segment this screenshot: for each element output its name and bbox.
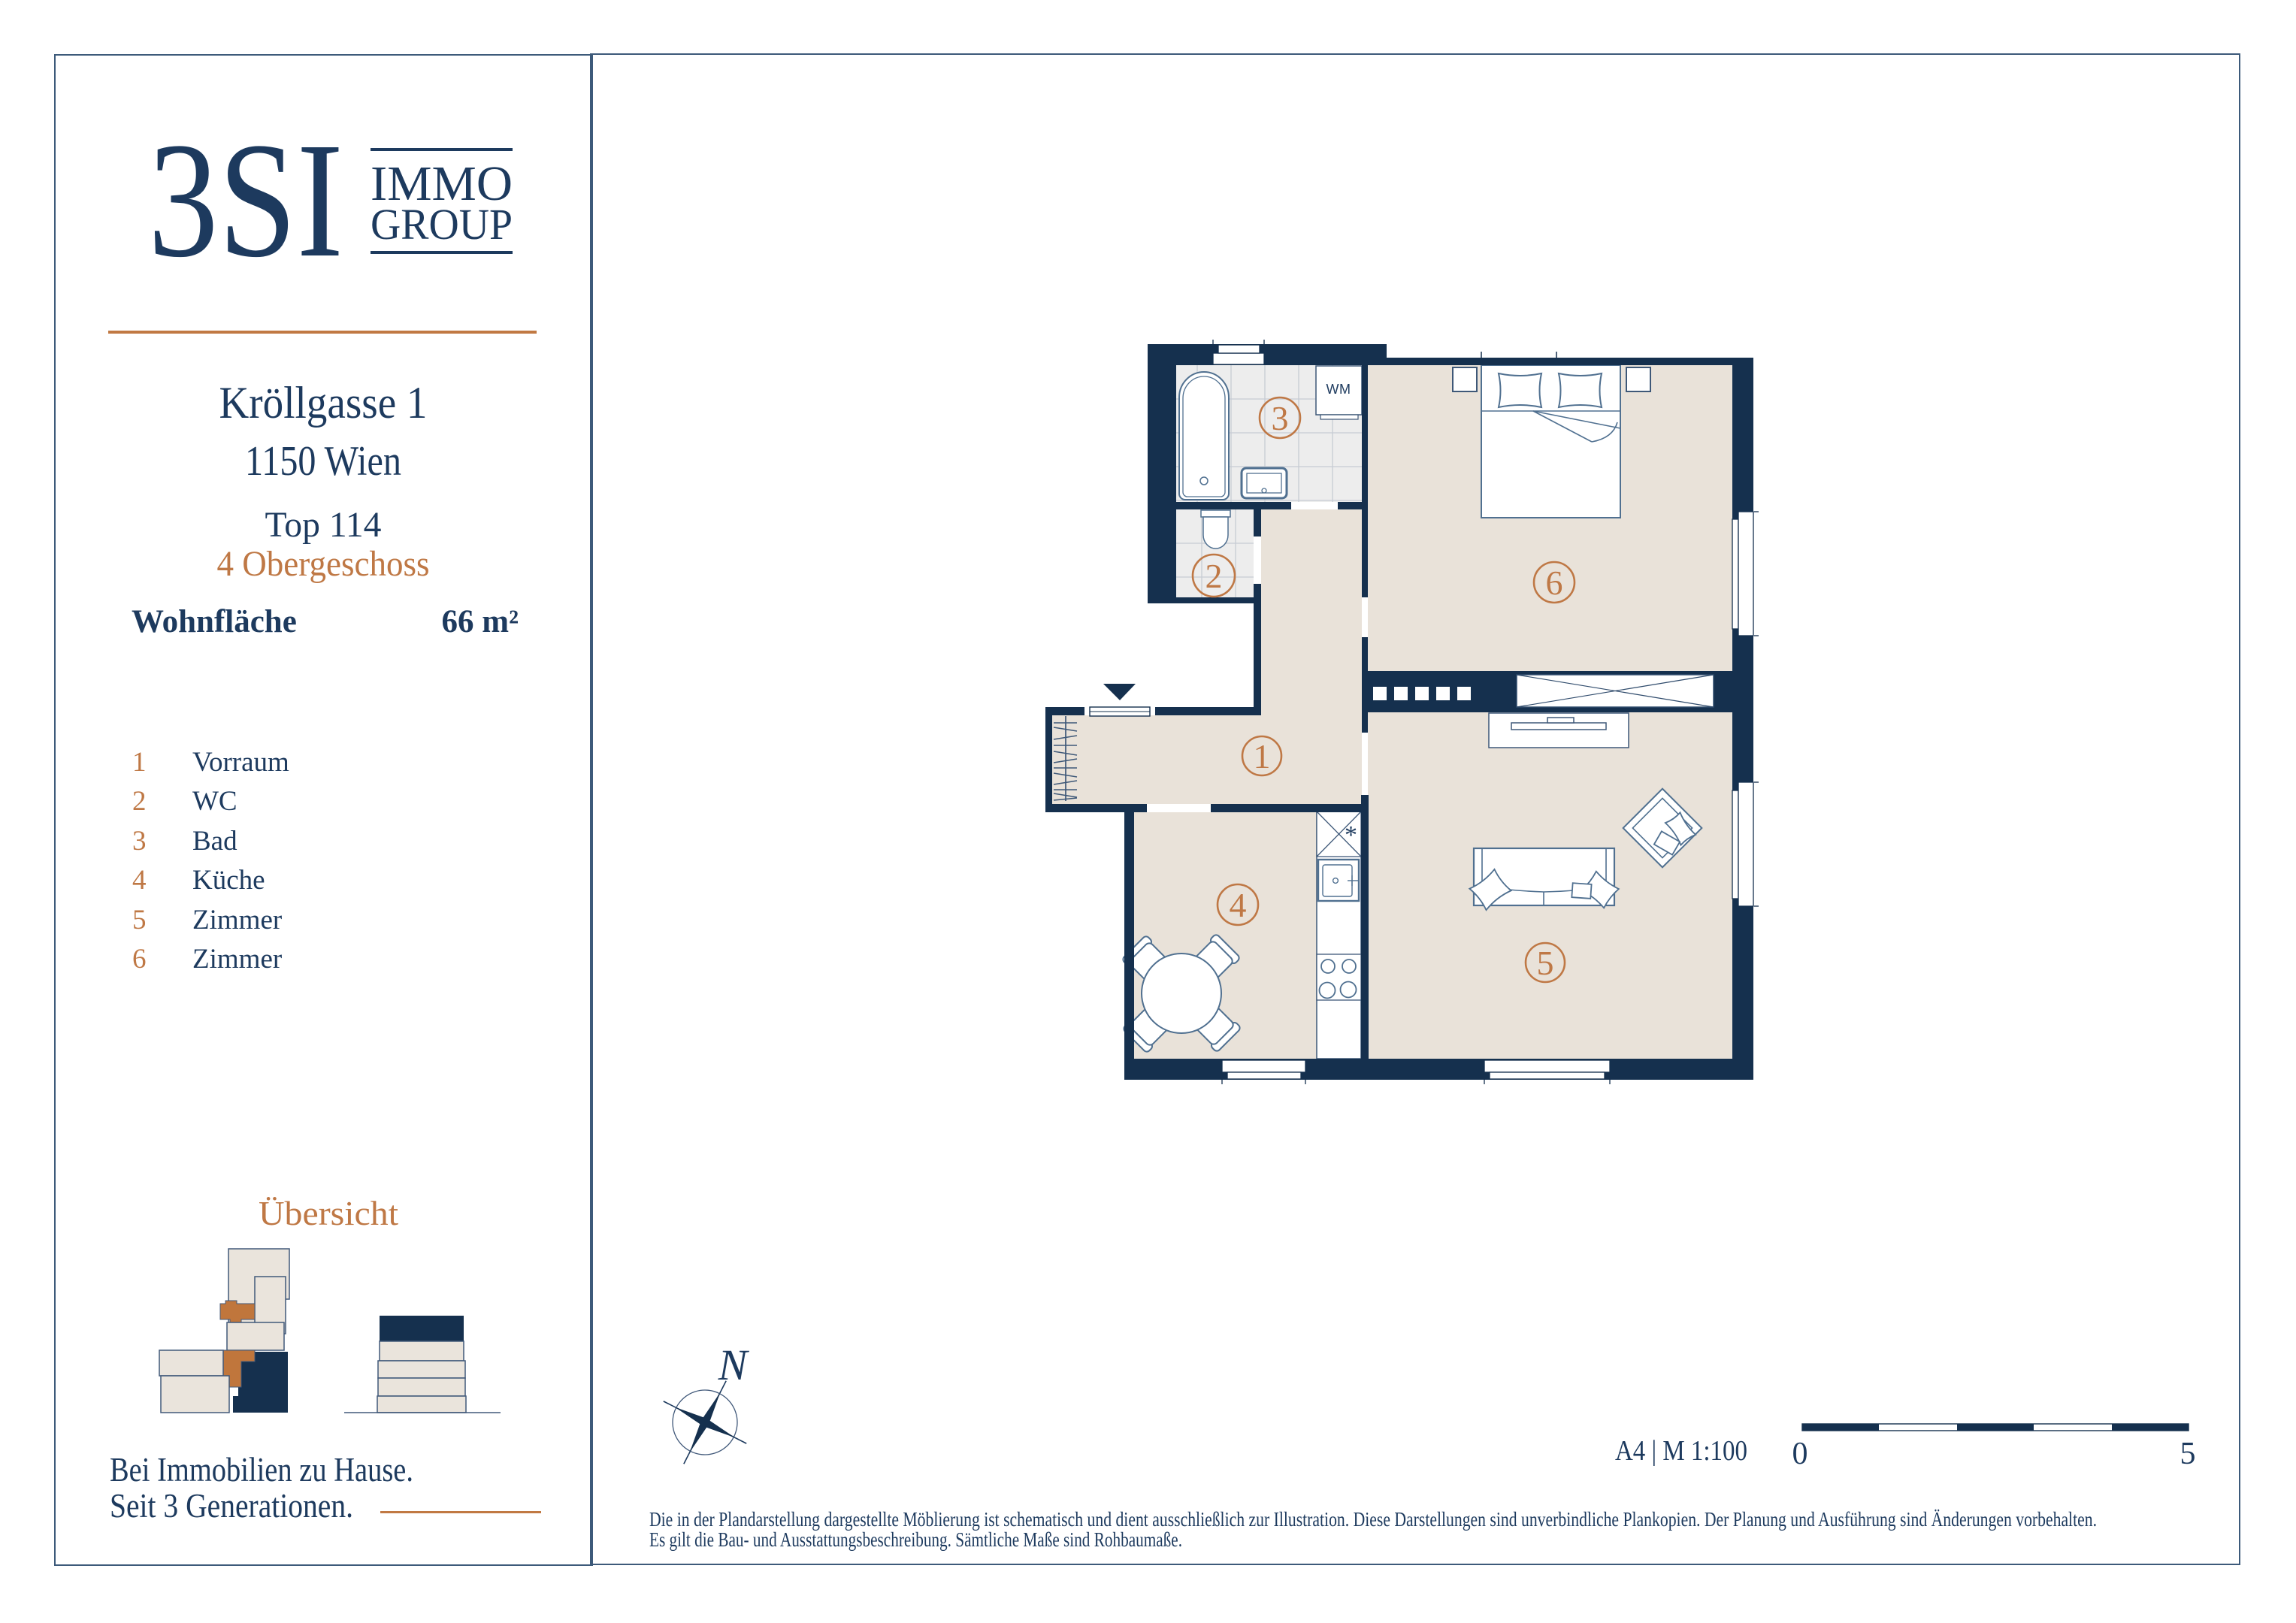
svg-text:WM: WM: [1326, 382, 1351, 397]
svg-text:WC: WC: [192, 786, 237, 817]
svg-text:6: 6: [132, 944, 147, 975]
svg-text:Seit 3 Generationen.: Seit 3 Generationen.: [110, 1487, 353, 1525]
svg-text:Zimmer: Zimmer: [192, 905, 282, 935]
svg-text:1150 Wien: 1150 Wien: [245, 438, 401, 485]
svg-text:5: 5: [2180, 1437, 2196, 1471]
svg-text:Top 114: Top 114: [265, 505, 382, 545]
svg-text:Kröllgasse 1: Kröllgasse 1: [219, 378, 428, 428]
svg-text:Bad: Bad: [192, 826, 237, 857]
svg-text:5: 5: [132, 905, 147, 935]
svg-text:2: 2: [1205, 557, 1223, 595]
svg-text:4: 4: [132, 865, 147, 896]
svg-text:3: 3: [1272, 399, 1289, 437]
svg-text:5: 5: [1537, 944, 1554, 982]
svg-text:Übersicht: Übersicht: [259, 1194, 398, 1232]
svg-text:1: 1: [132, 747, 147, 778]
svg-text:3SI: 3SI: [148, 108, 343, 292]
svg-text:4: 4: [1230, 886, 1247, 924]
svg-text:A4 | M 1:100: A4 | M 1:100: [1615, 1435, 1747, 1467]
svg-text:Zimmer: Zimmer: [192, 944, 282, 975]
svg-text:N: N: [718, 1340, 750, 1389]
svg-text:3: 3: [132, 826, 147, 857]
svg-text:66 m²: 66 m²: [442, 604, 519, 639]
svg-text:0: 0: [1792, 1437, 1808, 1471]
svg-text:GROUP: GROUP: [371, 200, 513, 249]
svg-text:Wohnfläche: Wohnfläche: [132, 604, 297, 639]
svg-text:Vorraum: Vorraum: [192, 747, 289, 778]
svg-text:Es gilt die Bau- und Ausstattu: Es gilt die Bau- und Ausstattungsbeschre…: [649, 1528, 1182, 1551]
svg-text:6: 6: [1546, 564, 1563, 602]
svg-text:Küche: Küche: [192, 865, 265, 896]
svg-text:2: 2: [132, 786, 147, 817]
svg-text:1: 1: [1254, 737, 1271, 775]
svg-text:4 Obergeschoss: 4 Obergeschoss: [217, 544, 430, 584]
svg-text:*: *: [1345, 821, 1357, 849]
svg-text:Bei Immobilien zu Hause.: Bei Immobilien zu Hause.: [110, 1451, 413, 1489]
